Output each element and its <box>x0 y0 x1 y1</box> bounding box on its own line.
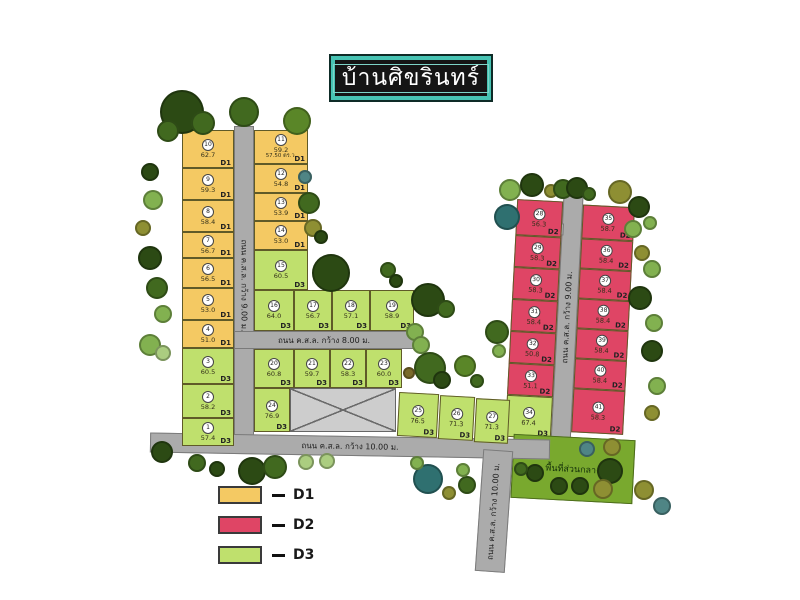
plot-number: 9 <box>202 174 214 186</box>
tree <box>628 286 652 310</box>
tree <box>135 220 151 236</box>
tree <box>520 173 544 197</box>
plot-area: 56.7 <box>306 313 320 320</box>
plot-number: 4 <box>202 324 214 336</box>
tree <box>582 187 596 201</box>
plot-7: 756.7D1 <box>182 232 234 258</box>
plot-29: 2958.3D2 <box>514 235 562 269</box>
plot-zone-label: D3 <box>220 375 231 383</box>
road-label: ถนน ค.ส.ล. กว้าง 10.00 ม. <box>301 439 398 454</box>
plot-area: 67.4 <box>521 420 536 428</box>
plot-area: 60.0 <box>377 371 391 378</box>
plot-area: 71.3 <box>484 424 499 432</box>
plot-33: 3351.1D2 <box>507 363 555 397</box>
plot-17: 1756.7D3 <box>294 290 332 331</box>
plot-zone-label: D1 <box>294 184 305 192</box>
tree <box>229 97 259 127</box>
plot-number: 5 <box>202 294 214 306</box>
plot-number: 29 <box>531 242 544 255</box>
tree <box>628 196 650 218</box>
plot-area-secondary: 57.50 ตร.ว. <box>266 154 297 160</box>
plot-area: 58.2 <box>201 404 215 411</box>
site-plan-canvas: ถนน ค.ส.ล. กว้าง 9.00 ม.2856.3D22958.3D2… <box>0 0 800 600</box>
plot-40: 4058.4D2 <box>573 358 626 391</box>
road-label: ถนน ค.ส.ล. กว้าง 10.00 ม. <box>484 462 504 560</box>
plot-zone-label: D1 <box>220 159 231 167</box>
plot-area: 53.0 <box>274 238 288 245</box>
tree <box>494 204 520 230</box>
plot-zone-label: D3 <box>423 428 434 437</box>
plot-number: 25 <box>412 405 425 418</box>
plot-area: 57.1 <box>344 313 358 320</box>
tree <box>608 180 632 204</box>
tree <box>209 461 225 477</box>
tree <box>410 456 424 470</box>
plot-number: 17 <box>307 300 319 312</box>
plot-area: 58.3 <box>530 255 545 263</box>
tree <box>653 497 671 515</box>
tree <box>624 220 642 238</box>
tree <box>645 314 663 332</box>
tree <box>458 476 476 494</box>
plot-27: 2771.3D3 <box>474 398 510 444</box>
plot-zone-label: D3 <box>316 379 327 387</box>
legend-dash <box>272 554 285 557</box>
plot-16: 1664.0D3 <box>254 290 294 331</box>
plot-zone-label: D3 <box>220 409 231 417</box>
plot-9: 959.3D1 <box>182 168 234 200</box>
plot-31: 3158.4D2 <box>510 299 558 333</box>
plot-zone-label: D3 <box>276 423 287 431</box>
tree <box>550 477 568 495</box>
plot-23: 2360.0D3 <box>366 349 402 388</box>
plot-number: 8 <box>202 206 214 218</box>
plot-area: 53.9 <box>274 210 288 217</box>
plot-32: 3250.8D2 <box>509 331 557 365</box>
tree <box>238 457 266 485</box>
plot-zone-label: D2 <box>616 291 627 300</box>
plot-8: 858.4D1 <box>182 200 234 232</box>
plot-zone-label: D2 <box>548 228 559 237</box>
tree <box>571 477 589 495</box>
tree <box>155 345 171 361</box>
tree <box>143 190 163 210</box>
tree <box>634 480 654 500</box>
plot-zone-label: D3 <box>280 322 291 330</box>
plot-area: 60.5 <box>274 273 288 280</box>
project-title: บ้านศิขรินทร์ <box>333 64 489 93</box>
plot-number: 39 <box>596 334 609 347</box>
plot-area: 51.1 <box>523 383 538 391</box>
tree <box>298 454 314 470</box>
plot-24: 2476.9D3 <box>254 388 290 432</box>
plot-number: 27 <box>486 411 499 424</box>
plot-area: 64.0 <box>267 313 281 320</box>
plot-number: 28 <box>533 208 546 221</box>
legend: D1D2D3 <box>218 486 314 576</box>
plot-zone-label: D2 <box>613 351 624 360</box>
plot-19: 1958.9D3 <box>370 290 414 331</box>
common-area-label: พื้นที่ส่วนกลาง <box>545 461 601 478</box>
plot-5: 553.0D1 <box>182 288 234 320</box>
plot-area: 60.5 <box>201 369 215 376</box>
legend-dash <box>272 524 285 527</box>
plot-26: 2671.3D3 <box>438 395 475 441</box>
plot-area: 60.8 <box>267 371 281 378</box>
plot-number: 20 <box>268 358 280 370</box>
plot-zone-label: D1 <box>220 311 231 319</box>
tree <box>138 246 162 270</box>
plot-area: 58.4 <box>201 219 215 226</box>
plot-number: 19 <box>386 300 398 312</box>
plot-area: 76.9 <box>265 413 279 420</box>
tree <box>526 464 544 482</box>
legend-swatch <box>218 516 262 534</box>
plot-zone-label: D1 <box>294 212 305 220</box>
plot-number: 31 <box>528 306 541 319</box>
plot-zone-label: D3 <box>388 379 399 387</box>
tree <box>579 441 595 457</box>
tree <box>154 305 172 323</box>
plot-11: 1159.257.50 ตร.ว.D1 <box>254 130 308 164</box>
plot-area: 76.5 <box>410 418 425 426</box>
plot-area: 56.7 <box>201 248 215 255</box>
plot-number: 21 <box>306 358 318 370</box>
plot-zone-label: D2 <box>544 292 555 301</box>
plot-number: 12 <box>275 168 287 180</box>
tree <box>593 479 613 499</box>
plot-area: 58.3 <box>341 371 355 378</box>
tree <box>298 170 312 184</box>
plot-21: 2159.7D3 <box>294 349 330 388</box>
tree <box>389 274 403 288</box>
plot-15: 1560.5D3 <box>254 250 308 290</box>
legend-swatch <box>218 546 262 564</box>
tree <box>314 230 328 244</box>
road-label: ถนน ค.ส.ล. กว้าง 9.00 ม. <box>558 271 576 364</box>
plot-zone-label: D3 <box>280 379 291 387</box>
road-mid-8m: ถนน ค.ส.ล. กว้าง 8.00 ม. <box>234 331 414 349</box>
plot-area: 59.3 <box>201 187 215 194</box>
tree <box>312 254 350 292</box>
tree <box>191 111 215 135</box>
plot-zone-label: D1 <box>220 279 231 287</box>
plot-zone-label: D2 <box>612 381 623 390</box>
legend-label: D1 <box>293 487 314 503</box>
tree <box>141 163 159 181</box>
tree <box>492 344 506 358</box>
tree <box>603 438 621 456</box>
plot-zone-label: D1 <box>294 155 305 163</box>
tree <box>298 192 320 214</box>
plot-zone-label: D2 <box>615 321 626 330</box>
road-label: ถนน ค.ส.ล. กว้าง 8.00 ม. <box>278 334 370 347</box>
tree <box>146 277 168 299</box>
plot-number: 6 <box>202 263 214 275</box>
plot-area: 58.4 <box>597 287 612 295</box>
plot-number: 18 <box>345 300 357 312</box>
tree <box>499 179 521 201</box>
tree <box>648 377 666 395</box>
plot-6: 656.5D1 <box>182 258 234 288</box>
tree <box>643 260 661 278</box>
road-south-vertical: ถนน ค.ส.ล. กว้าง 10.00 ม. <box>475 449 513 573</box>
plot-zone-label: D1 <box>294 241 305 249</box>
red-zone-block: ถนน ค.ส.ล. กว้าง 9.00 ม.2856.3D22958.3D2… <box>498 191 641 449</box>
plot-number: 41 <box>592 401 605 414</box>
legend-label: D3 <box>293 547 314 563</box>
plot-number: 15 <box>275 260 287 272</box>
plot-number: 7 <box>202 235 214 247</box>
plot-3: 360.5D3 <box>182 348 234 384</box>
plot-area: 58.3 <box>590 414 605 422</box>
title-banner: บ้านศิขรินทร์ <box>331 56 491 100</box>
plot-number: 35 <box>602 212 615 225</box>
tree <box>470 374 484 388</box>
tree <box>456 463 470 477</box>
plot-area: 56.3 <box>532 221 547 229</box>
plot-area: 58.4 <box>526 319 541 327</box>
legend-item-d1: D1 <box>218 486 314 504</box>
plot-30: 3058.3D2 <box>512 267 560 301</box>
plot-area: 51.0 <box>201 337 215 344</box>
plot-25: 2576.5D3 <box>397 392 439 438</box>
plot-4: 451.0D1 <box>182 320 234 348</box>
plot-zone-label: D2 <box>543 324 554 333</box>
plot-number: 22 <box>342 358 354 370</box>
plot-number: 14 <box>275 225 287 237</box>
plot-14: 1453.0D1 <box>254 221 308 250</box>
plot-zone-label: D1 <box>220 191 231 199</box>
plot-number: 33 <box>525 370 538 383</box>
tree <box>403 367 415 379</box>
tree <box>514 462 528 476</box>
tree <box>485 320 509 344</box>
plot-number: 16 <box>268 300 280 312</box>
plot-zone-label: D3 <box>220 437 231 445</box>
legend-item-d2: D2 <box>218 516 314 534</box>
plot-39: 3958.4D2 <box>575 328 628 361</box>
tree <box>437 300 455 318</box>
tree <box>151 441 173 463</box>
plot-number: 11 <box>275 134 287 146</box>
tree <box>319 453 335 469</box>
plot-area: 56.5 <box>201 276 215 283</box>
plot-area: 58.4 <box>594 347 609 355</box>
plot-34: 3467.4D3 <box>505 395 553 439</box>
tree <box>433 371 451 389</box>
plot-number: 30 <box>530 274 543 287</box>
plot-area: 50.8 <box>525 351 540 359</box>
plot-zone-label: D3 <box>318 322 329 330</box>
plot-zone-label: D2 <box>539 388 550 397</box>
plot-22: 2258.3D3 <box>330 349 366 388</box>
plot-zone-label: D2 <box>609 425 620 434</box>
plot-36: 3658.4D2 <box>580 238 633 271</box>
plot-zone-label: D3 <box>294 281 305 289</box>
plot-area: 58.9 <box>385 313 399 320</box>
plot-zone-label: D3 <box>459 431 470 440</box>
plot-area: 57.4 <box>201 435 215 442</box>
plot-number: 36 <box>600 244 613 257</box>
tree <box>283 107 311 135</box>
plot-18: 1857.1D3 <box>332 290 370 331</box>
plot-zone-label: D2 <box>541 356 552 365</box>
plot-zone-label: D1 <box>220 249 231 257</box>
plot-number: 40 <box>594 364 607 377</box>
tree <box>442 486 456 500</box>
plot-28: 2856.3D2 <box>515 199 563 237</box>
plot-38: 3858.4D2 <box>577 298 630 331</box>
plot-area: 71.3 <box>449 421 464 429</box>
plot-number: 24 <box>266 400 278 412</box>
plot-number: 10 <box>202 139 214 151</box>
road-left-vertical: ถนน ค.ส.ล. กว้าง 9.00 ม. <box>234 126 254 444</box>
plot-zone-label: D1 <box>220 339 231 347</box>
legend-label: D2 <box>293 517 314 533</box>
tree <box>157 120 179 142</box>
plot-number: 38 <box>597 304 610 317</box>
plot-area: 53.0 <box>201 307 215 314</box>
reserved-area-crossed <box>290 388 396 432</box>
road-label: ถนน ค.ส.ล. กว้าง 9.00 ม. <box>238 239 251 331</box>
plot-number: 34 <box>523 407 536 420</box>
plot-zone-label: D1 <box>220 223 231 231</box>
plot-area: 54.8 <box>274 181 288 188</box>
tree <box>634 245 650 261</box>
legend-dash <box>272 494 285 497</box>
plot-area: 62.7 <box>201 152 215 159</box>
plot-20: 2060.8D3 <box>254 349 294 388</box>
tree <box>263 455 287 479</box>
plot-zone-label: D2 <box>546 260 557 269</box>
plot-number: 37 <box>599 274 612 287</box>
plot-1: 157.4D3 <box>182 418 234 446</box>
plot-number: 3 <box>202 356 214 368</box>
plot-number: 13 <box>275 197 287 209</box>
plot-zone-label: D3 <box>494 434 505 443</box>
plot-41: 4158.3D2 <box>571 388 625 435</box>
plot-zone-label: D3 <box>352 379 363 387</box>
legend-swatch <box>218 486 262 504</box>
tree <box>188 454 206 472</box>
plot-zone-label: D3 <box>356 322 367 330</box>
tree <box>641 340 663 362</box>
tree <box>644 405 660 421</box>
plot-number: 26 <box>450 408 463 421</box>
plot-2: 258.2D3 <box>182 384 234 418</box>
plot-number: 2 <box>202 391 214 403</box>
legend-item-d3: D3 <box>218 546 314 564</box>
plot-area: 58.3 <box>528 287 543 295</box>
plot-area: 59.7 <box>305 371 319 378</box>
plot-zone-label: D2 <box>618 261 629 270</box>
plot-area: 58.7 <box>600 225 615 233</box>
plot-area: 58.4 <box>599 257 614 265</box>
tree <box>643 216 657 230</box>
plot-37: 3758.4D2 <box>578 268 631 301</box>
plot-area: 58.4 <box>592 377 607 385</box>
plot-area: 58.4 <box>596 317 611 325</box>
plot-10: 1062.7D1 <box>182 130 234 168</box>
tree <box>454 355 476 377</box>
plot-number: 1 <box>202 422 214 434</box>
plot-number: 32 <box>526 338 539 351</box>
plot-number: 23 <box>378 358 390 370</box>
